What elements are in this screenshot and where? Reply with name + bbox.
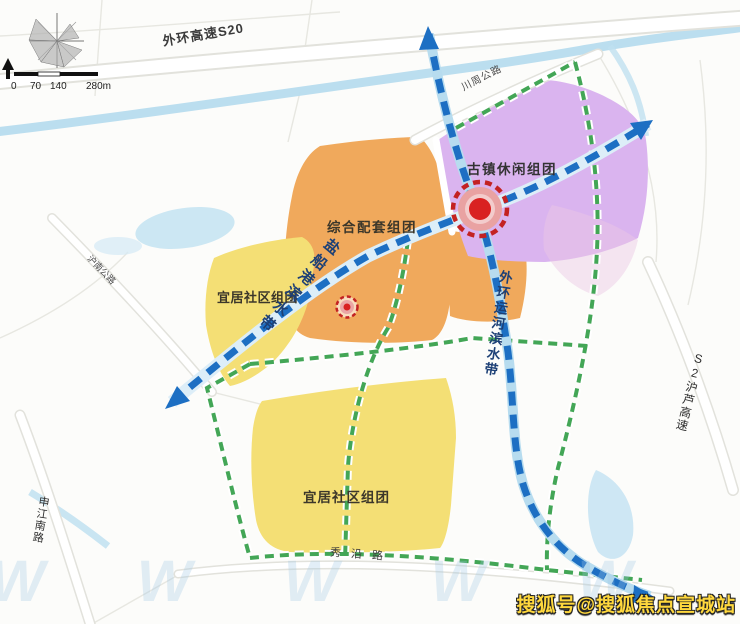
greenway-middle — [250, 338, 588, 364]
node-secondary-bullseye — [337, 297, 358, 318]
pond-left-small — [94, 237, 142, 255]
pond-bottom-right — [588, 470, 633, 559]
zone-residential-lower-yellow — [251, 378, 456, 553]
zone-composite-orange — [284, 137, 452, 343]
wind-rose-icon — [29, 13, 84, 68]
scale-tick-0: 0 — [11, 81, 17, 92]
pond-left — [133, 201, 238, 255]
planning-map: 0 70 140 280m 外环高速S20 川周公路 沪南公路 申江南路 S2沪… — [0, 0, 740, 624]
zone-label-composite: 综合配套组团 — [327, 216, 417, 236]
scale-tick-140: 140 — [50, 81, 67, 92]
scale-tick-70: 70 — [30, 81, 41, 92]
zone-label-residential-lower: 宜居社区组团 — [303, 486, 390, 506]
zone-label-ancient-town: 古镇休闲组团 — [467, 158, 557, 178]
scale-tick-280m: 280m — [86, 81, 111, 92]
watermark-text: 搜狐号@搜狐焦点宣城站 — [516, 590, 736, 617]
map-canvas — [0, 0, 740, 624]
